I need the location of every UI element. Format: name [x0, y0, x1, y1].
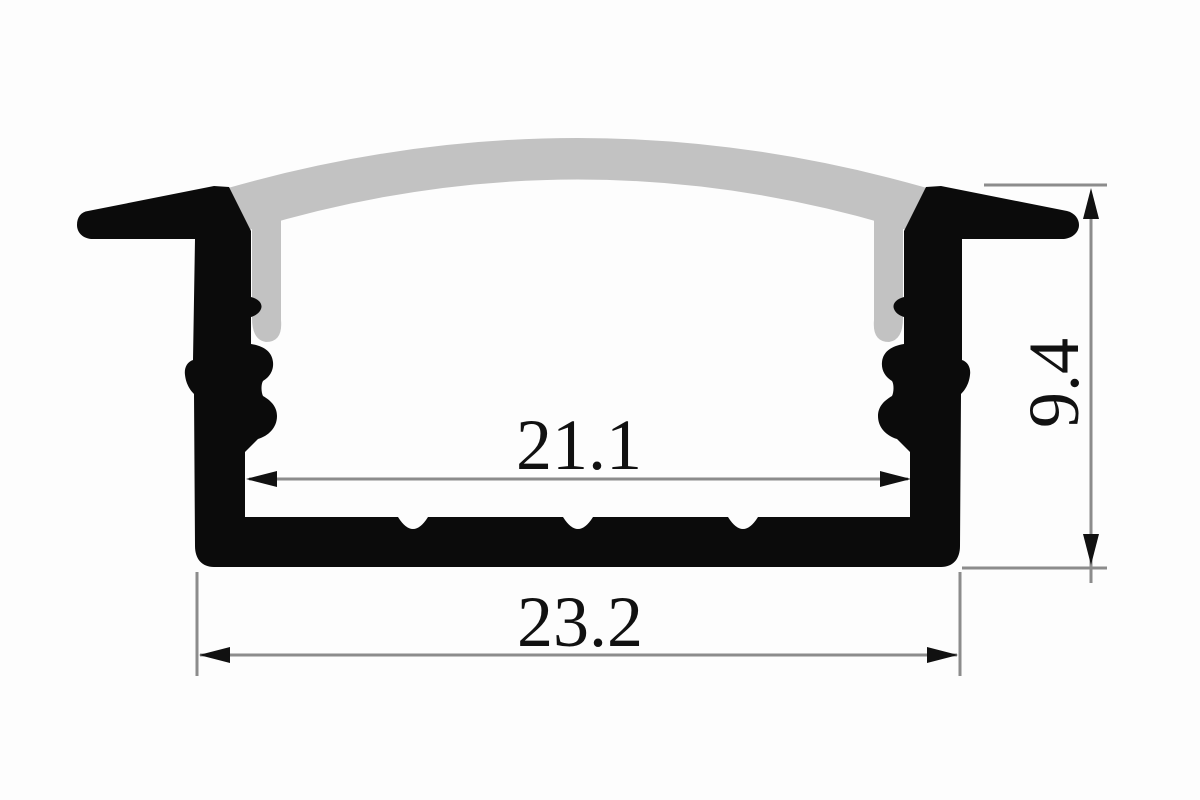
diffuser-arc [228, 138, 927, 233]
diffuser [228, 138, 927, 342]
dimension-label-inner-width: 21.1 [516, 405, 642, 485]
drawing-canvas: 21.1 23.2 9.4 [0, 0, 1200, 800]
arrowhead-left-23-2 [199, 647, 230, 663]
arrowhead-right-21-1 [880, 471, 911, 487]
arrowhead-top-9-4 [1083, 188, 1099, 219]
diffuser-leg-right [874, 196, 903, 342]
arrowhead-right-23-2 [927, 647, 958, 663]
profile-cross-section-drawing: 21.1 23.2 9.4 [0, 0, 1200, 800]
diffuser-leg-left [252, 196, 281, 342]
dimension-outer-width: 23.2 [197, 572, 960, 676]
arrowhead-bottom-9-4 [1083, 534, 1099, 565]
profile-body [77, 186, 1079, 567]
dimension-label-height: 9.4 [1014, 338, 1094, 428]
dimension-label-outer-width: 23.2 [517, 582, 643, 662]
arrowhead-left-21-1 [246, 471, 277, 487]
dimension-height: 9.4 [962, 185, 1107, 583]
dimension-inner-width: 21.1 [246, 405, 911, 487]
